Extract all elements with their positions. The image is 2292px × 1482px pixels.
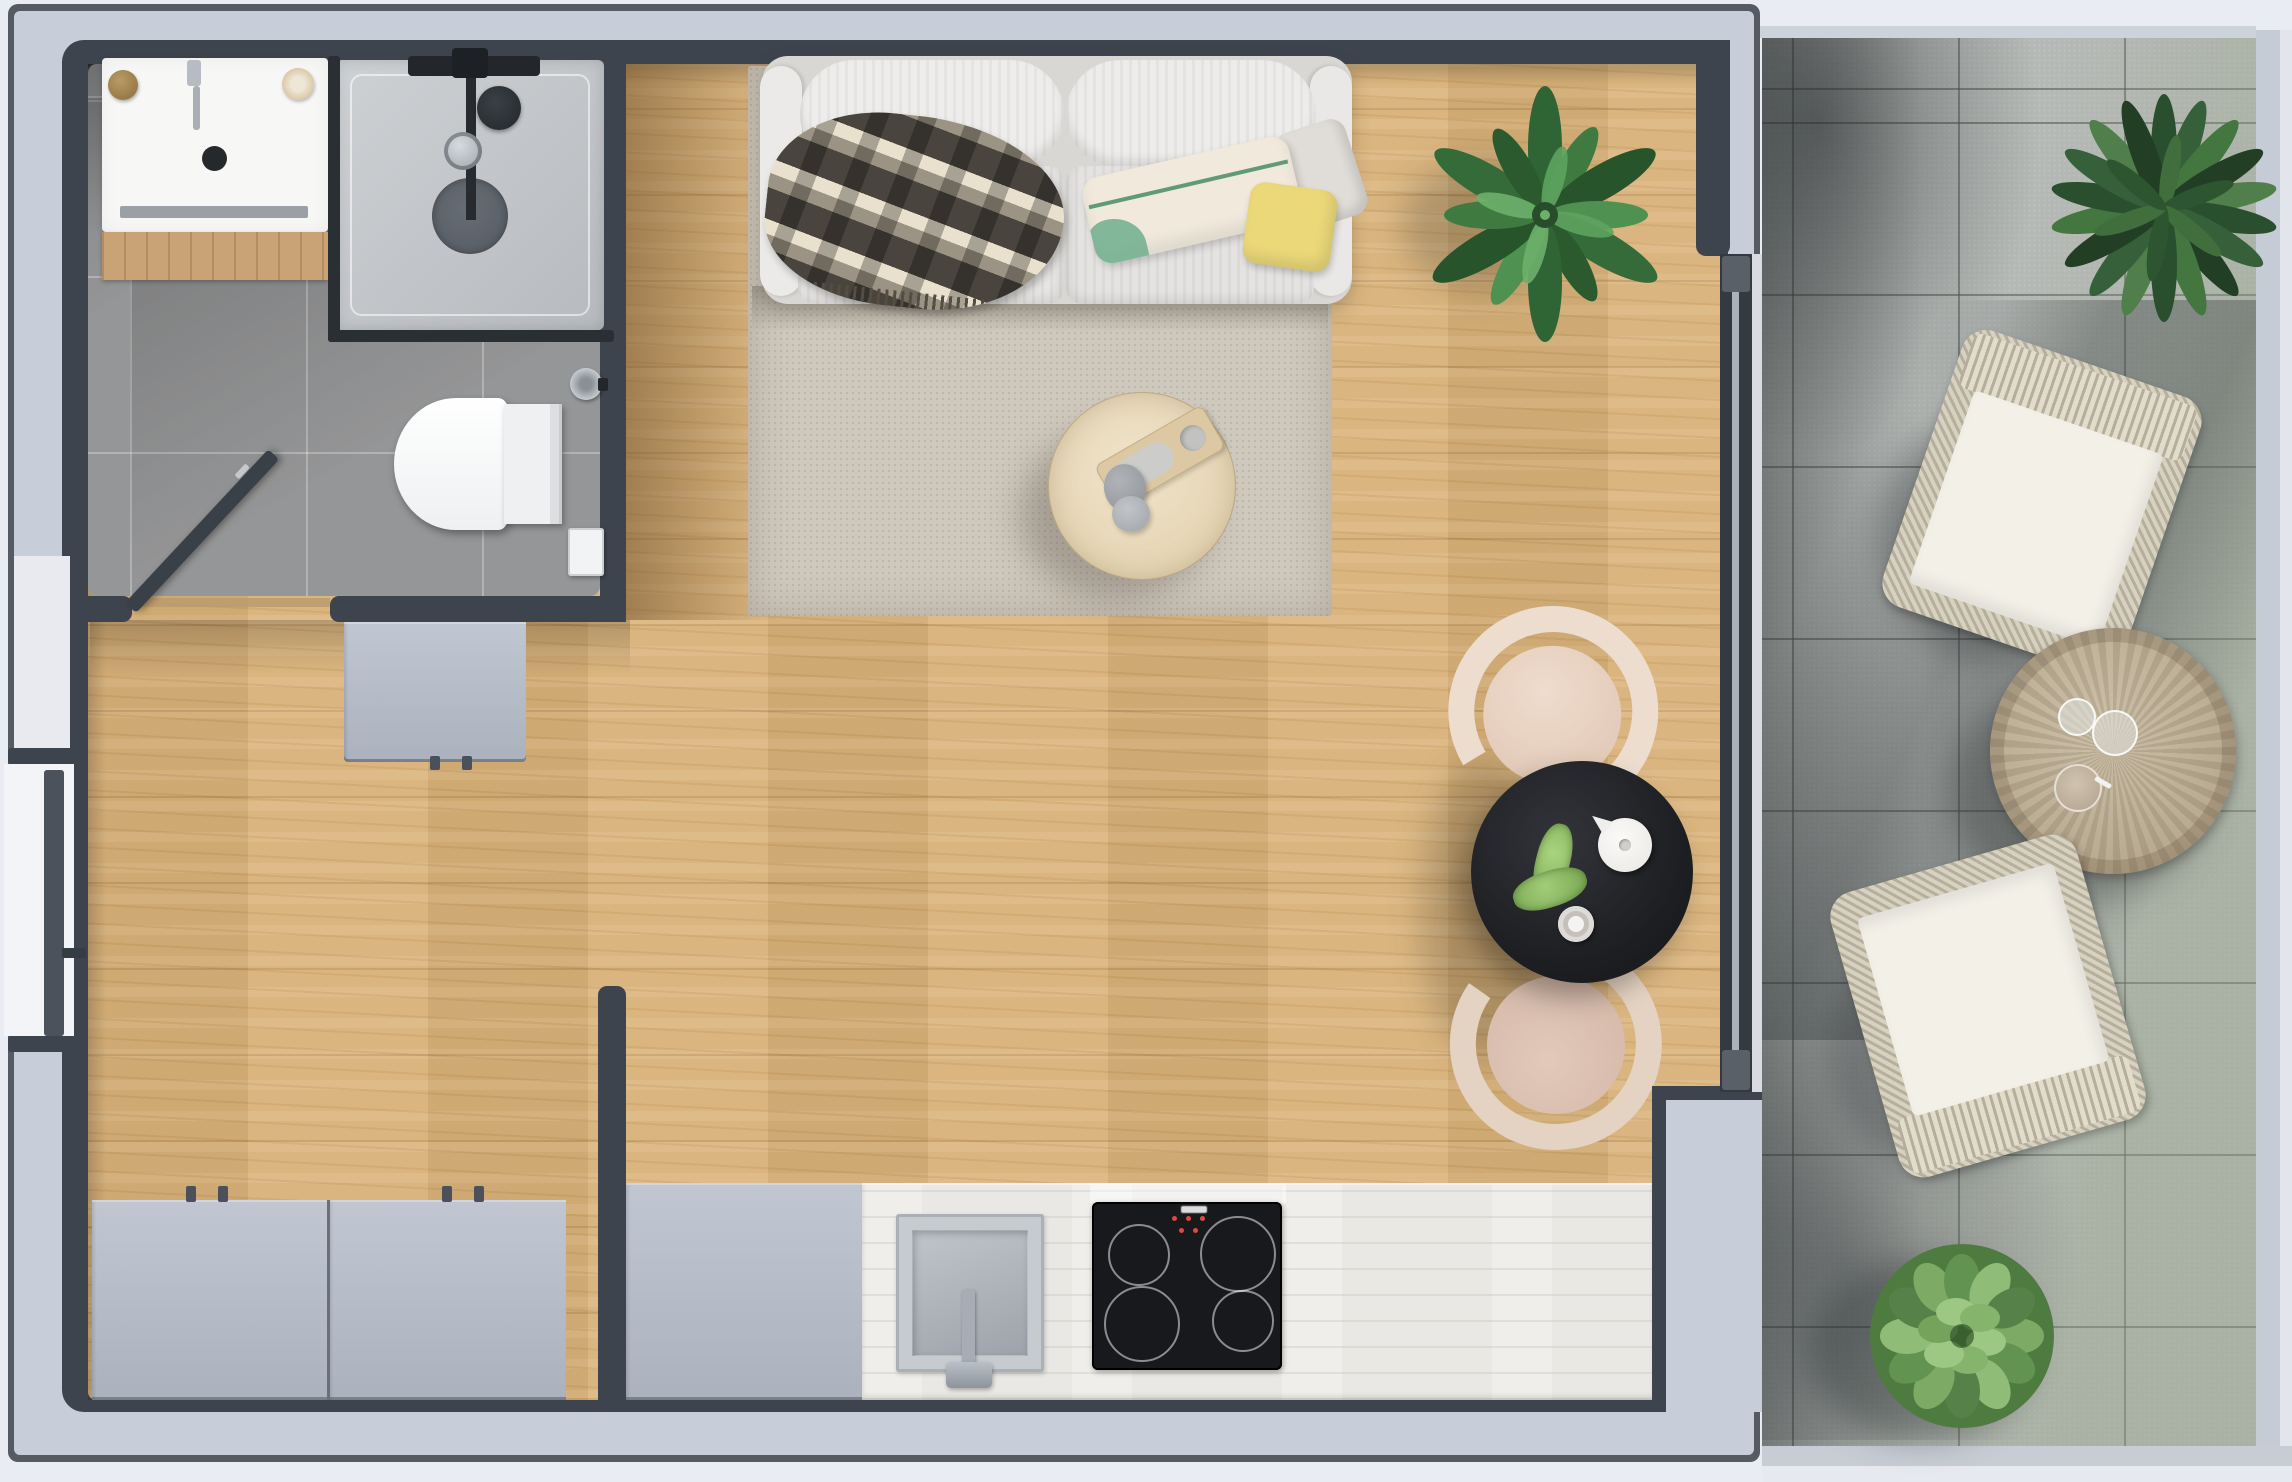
bush-planter [1846,1208,2078,1458]
sideboard-cabinet [344,622,526,762]
control-light-5 [1193,1228,1198,1233]
drinking-glass-small [2058,698,2096,736]
control-light-3 [1200,1216,1205,1221]
wardrobe-handle-1 [186,1186,196,1202]
potted-plant-svg [1408,78,1682,352]
sliding-door-glass [1732,260,1739,1086]
basin-faucet [187,60,201,86]
teapot [1598,818,1652,872]
shower-valve [444,132,482,170]
floor-plan [0,0,2292,1482]
burner-bottom-left [1104,1286,1180,1362]
kitchen-tall-cabinet [626,1183,862,1400]
sink-faucet-head [946,1362,992,1388]
toilet-paper-holder [568,528,604,576]
toilet-brush-handle [598,378,608,391]
basin-drain [202,146,227,171]
outdoor-cup [2054,764,2102,812]
conifer-planter [2014,48,2292,348]
coffee-cup [1558,906,1594,942]
potted-plant [1408,78,1682,352]
sink-faucet-stem [962,1290,975,1370]
conifer-svg [2014,48,2292,348]
control-light-2 [1186,1216,1191,1221]
sideboard-handle-2 [462,756,472,770]
entrance-jamb-top [8,748,88,764]
kitchen-wall-stub [598,986,626,1400]
burner-bottom-right [1212,1290,1274,1352]
decor-stone-small [1112,496,1150,532]
entrance-door-handle [62,948,86,958]
tray-bowl [1175,420,1211,456]
toilet-bowl [394,398,508,530]
sliding-door-handle [1722,256,1750,292]
control-light-4 [1179,1228,1184,1233]
wardrobe-handle-3 [442,1186,452,1202]
entrance-jamb-bottom [8,1036,88,1052]
shower-head [477,86,521,130]
kitchen-backsplash-hint [1090,1183,1286,1203]
right-wall-lower-light [1652,1086,1762,1412]
drinking-glass-large [2092,710,2138,756]
wardrobe-left-panel [92,1200,329,1400]
teapot-spout [1587,810,1613,835]
toilet-tank [504,404,562,524]
basin-shelf-bar [120,206,308,218]
balcony-top-edge [1760,26,2256,38]
cooktop-brand-mark [1181,1206,1207,1213]
towel-roll [282,68,314,100]
bathroom-door-threshold [132,598,330,607]
teapot-knob [1619,839,1631,851]
pillow-yellow [1241,180,1340,273]
bathroom-wall-bottom [330,596,626,622]
shower-frame-bottom [328,330,614,342]
wardrobe-divider [327,1200,330,1400]
wardrobe-handle-4 [474,1186,484,1202]
induction-cooktop [1092,1202,1282,1370]
sideboard-handle-1 [430,756,440,770]
entrance-door [44,770,64,1036]
bush-svg [1846,1208,2078,1458]
shower-frame-left [328,56,340,342]
control-light-1 [1172,1216,1177,1221]
basin-faucet-spout [193,86,200,130]
sliding-door-stop [1722,1050,1750,1090]
shower-fixture-block [452,48,488,78]
burner-top-left [1108,1224,1170,1286]
door-threshold [1752,254,1762,1092]
round-coffee-table [1048,392,1236,580]
round-wicker-table [1990,628,2236,874]
washbasin [102,58,328,232]
black-dining-table [1471,761,1693,983]
wardrobe-right-panel [329,1200,566,1400]
entrance-niche [14,556,70,752]
wardrobe-handle-2 [218,1186,228,1202]
balcony-bottom-outer [1762,1466,2292,1482]
burner-top-right [1200,1216,1276,1292]
sliding-door-track [1720,254,1752,1092]
soap-dispenser [108,70,138,100]
right-wall-upper [1696,40,1730,256]
wooden-bath-mat [102,232,328,280]
bathroom-wall-door-stub [88,596,132,622]
